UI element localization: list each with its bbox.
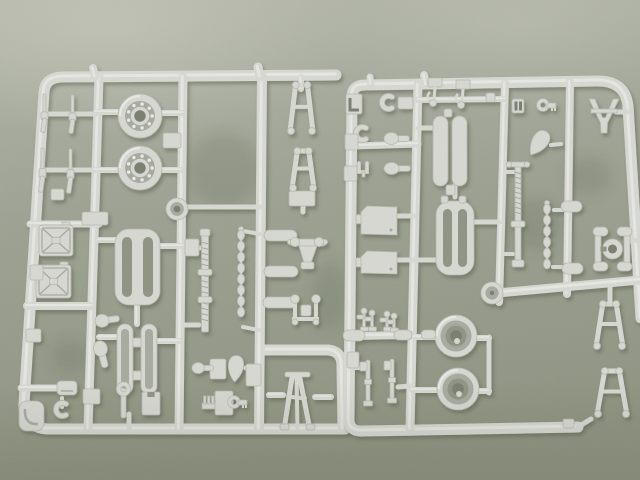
photo-of-model-sprues xyxy=(0,0,640,480)
scene-photo xyxy=(0,0,640,480)
film-grain xyxy=(0,0,640,480)
